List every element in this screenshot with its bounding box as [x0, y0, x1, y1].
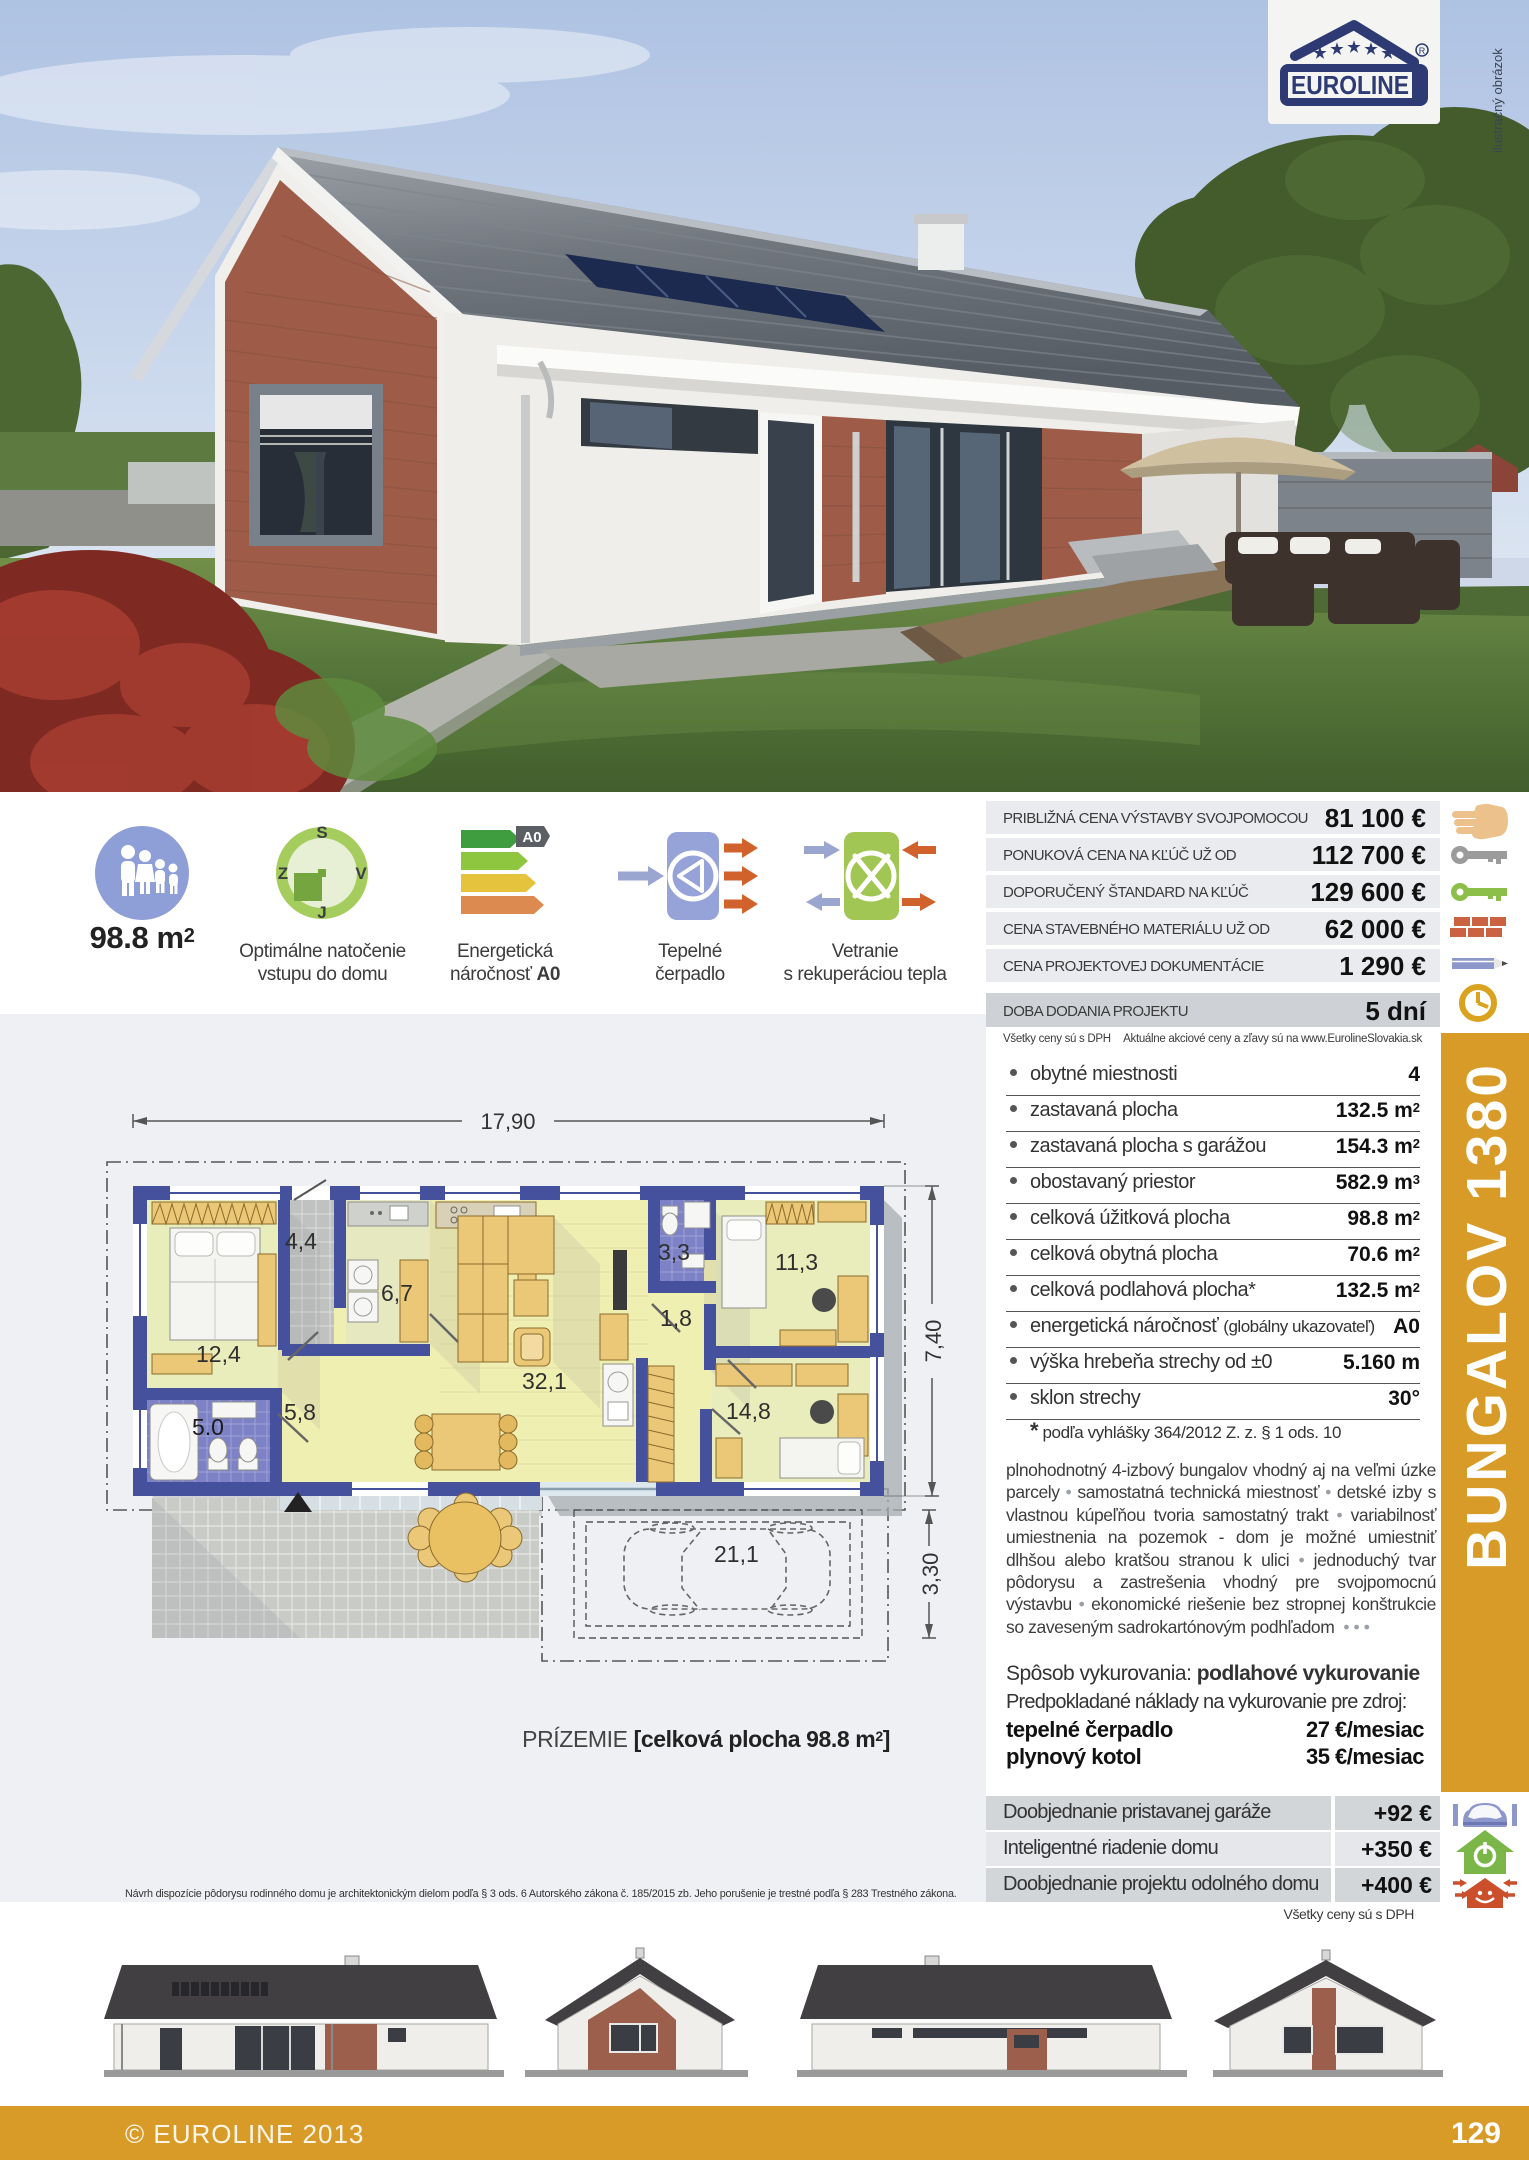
svg-text:11,3: 11,3 [775, 1249, 818, 1275]
svg-text:21,1: 21,1 [714, 1541, 759, 1567]
svg-text:5,8: 5,8 [284, 1399, 316, 1425]
svg-text:Z: Z [278, 864, 288, 883]
svg-text:32,1: 32,1 [522, 1368, 567, 1394]
svg-text:★: ★ [1313, 45, 1327, 62]
svg-text:4,4: 4,4 [285, 1228, 317, 1254]
svg-text:S: S [316, 823, 327, 842]
svg-text:★: ★ [1330, 41, 1344, 58]
svg-text:EUROLINE: EUROLINE [1291, 70, 1409, 100]
svg-text:6,7: 6,7 [381, 1280, 413, 1306]
svg-text:★: ★ [1381, 45, 1395, 62]
svg-text:★: ★ [1347, 39, 1361, 56]
svg-text:12,4: 12,4 [196, 1341, 241, 1367]
svg-text:R: R [1419, 46, 1426, 56]
svg-text:J: J [317, 903, 326, 922]
svg-text:3,30: 3,30 [918, 1553, 943, 1596]
svg-text:A0: A0 [522, 829, 541, 846]
svg-text:5.0: 5.0 [192, 1414, 224, 1440]
svg-text:7,40: 7,40 [921, 1320, 946, 1363]
svg-text:17,90: 17,90 [480, 1109, 535, 1134]
svg-text:★: ★ [1364, 41, 1378, 58]
svg-text:14,8: 14,8 [726, 1398, 771, 1424]
svg-text:1,8: 1,8 [660, 1305, 692, 1331]
svg-text:3,3: 3,3 [658, 1239, 690, 1265]
svg-text:V: V [355, 864, 367, 883]
